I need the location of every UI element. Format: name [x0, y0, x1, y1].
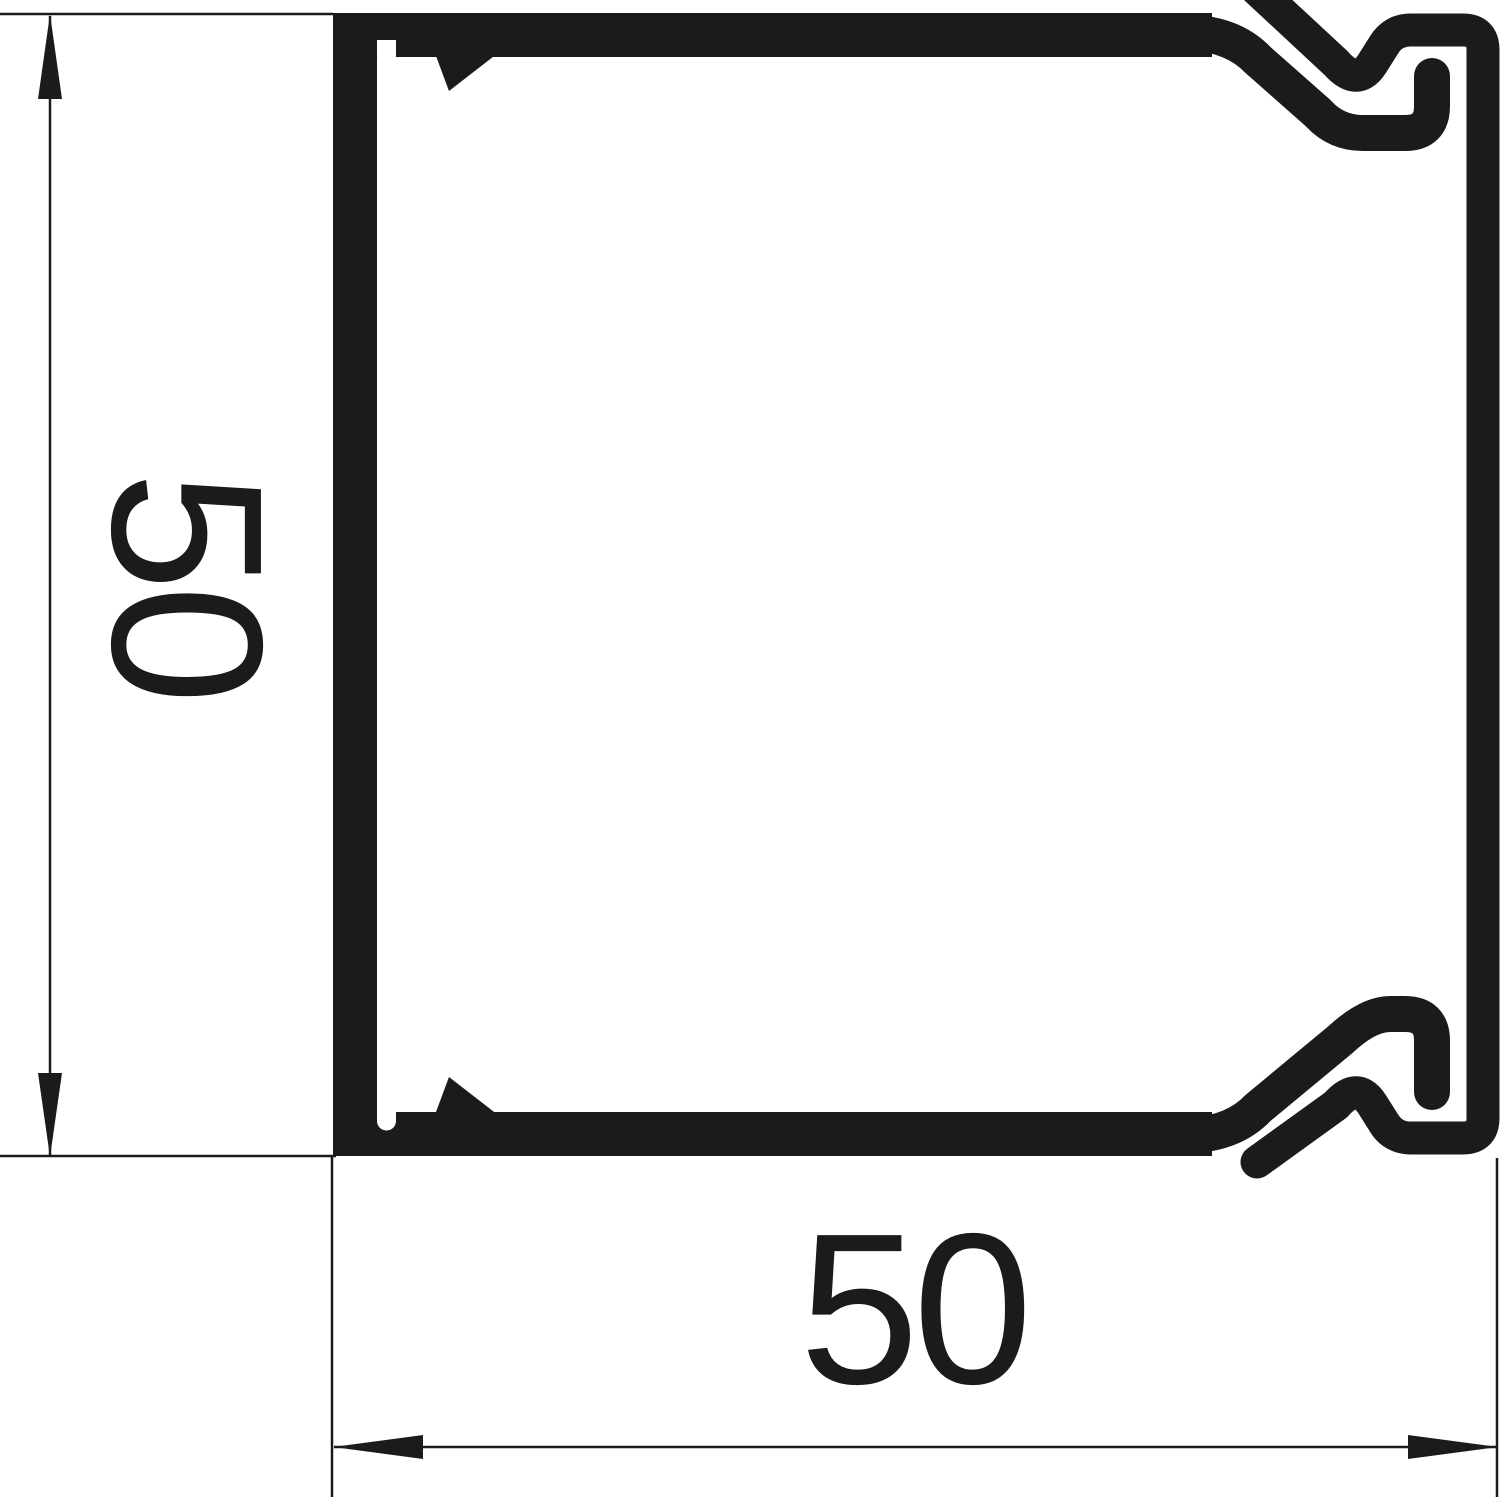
- bottom-hinge-slot: [377, 1104, 396, 1131]
- cover-path: [1251, 0, 1483, 1162]
- height-dimension-label: 50: [67, 471, 308, 698]
- dimension-height: 50: [0, 14, 336, 1157]
- width-arrowhead-right: [1408, 1435, 1498, 1459]
- technical-drawing-page: 50 50: [0, 0, 1500, 1497]
- top-retention-tooth: [433, 48, 498, 91]
- profile-cover: [1251, 0, 1483, 1162]
- profile-base: [355, 33, 1432, 1135]
- height-arrowhead-down: [38, 1073, 62, 1157]
- bottom-retention-tooth: [433, 1077, 498, 1120]
- trunking-cross-section-drawing: 50 50: [0, 0, 1500, 1497]
- dimension-width: 50: [332, 1156, 1498, 1497]
- top-hinge-slot: [377, 40, 396, 65]
- width-dimension-label: 50: [799, 1188, 1026, 1429]
- base-walls-path: [355, 35, 1212, 1134]
- width-arrowhead-left: [333, 1435, 423, 1459]
- height-arrowhead-up: [38, 14, 62, 99]
